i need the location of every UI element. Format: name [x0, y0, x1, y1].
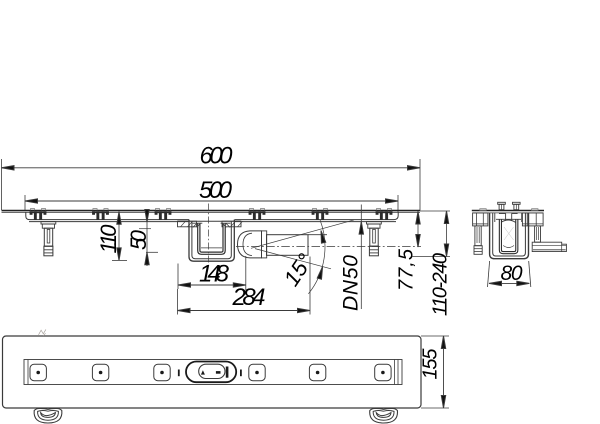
svg-text:50: 50	[126, 229, 151, 250]
svg-text:110-240: 110-240	[430, 253, 452, 316]
svg-text:DN50: DN50	[340, 255, 363, 311]
svg-text:284: 284	[232, 284, 266, 311]
svg-text:80: 80	[501, 262, 523, 285]
svg-text:148: 148	[199, 261, 230, 288]
svg-text:155: 155	[420, 348, 442, 380]
svg-text:110: 110	[96, 224, 121, 254]
svg-text:600: 600	[200, 143, 234, 170]
svg-text:500: 500	[199, 177, 233, 204]
svg-text:77,5: 77,5	[396, 248, 418, 291]
